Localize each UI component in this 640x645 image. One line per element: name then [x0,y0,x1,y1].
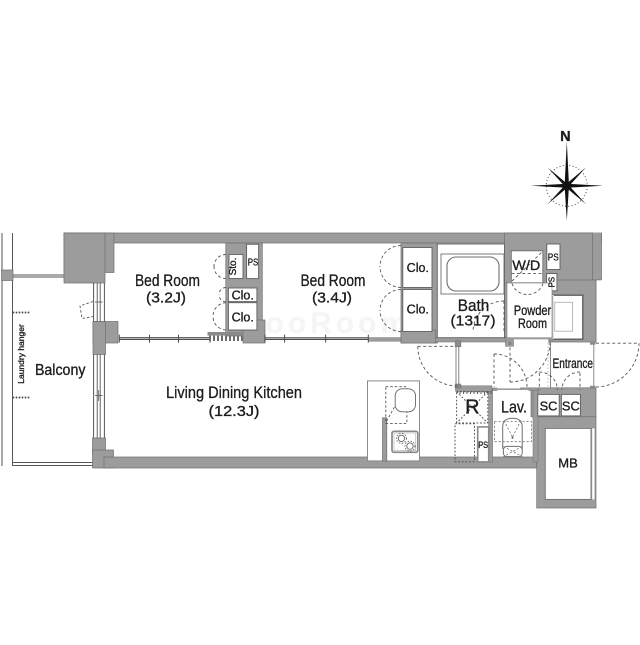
svg-text:PS: PS [548,252,559,264]
svg-text:Sto.: Sto. [228,258,239,276]
svg-text:Clo.: Clo. [407,303,429,317]
svg-text:Bed Room: Bed Room [301,271,366,290]
svg-text:Entrance: Entrance [553,356,594,371]
svg-text:Clo.: Clo. [407,261,429,275]
svg-text:(3.4J): (3.4J) [312,290,352,307]
svg-text:Living Dining Kitchen: Living Dining Kitchen [166,383,302,402]
svg-text:PS: PS [548,277,557,288]
svg-text:Lav.: Lav. [501,398,527,417]
svg-text:Balcony: Balcony [35,362,86,379]
svg-text:Room: Room [518,316,547,331]
svg-text:SC: SC [540,399,558,414]
svg-text:SC: SC [562,399,580,414]
svg-text:Clo.: Clo. [232,289,254,303]
svg-text:W/D: W/D [512,258,540,273]
svg-text:PS: PS [478,440,488,451]
svg-text:PS: PS [248,257,259,269]
svg-text:R: R [465,397,479,419]
svg-text:(12.3J): (12.3J) [209,403,260,420]
svg-text:Laundry hanger: Laundry hanger [16,324,26,384]
svg-text:N: N [560,129,570,145]
svg-text:Clo.: Clo. [232,311,254,325]
svg-text:(3.2J): (3.2J) [146,290,186,307]
svg-text:(1317): (1317) [451,313,496,330]
svg-text:Bed Room: Bed Room [135,271,200,290]
svg-text:MB: MB [558,456,578,471]
